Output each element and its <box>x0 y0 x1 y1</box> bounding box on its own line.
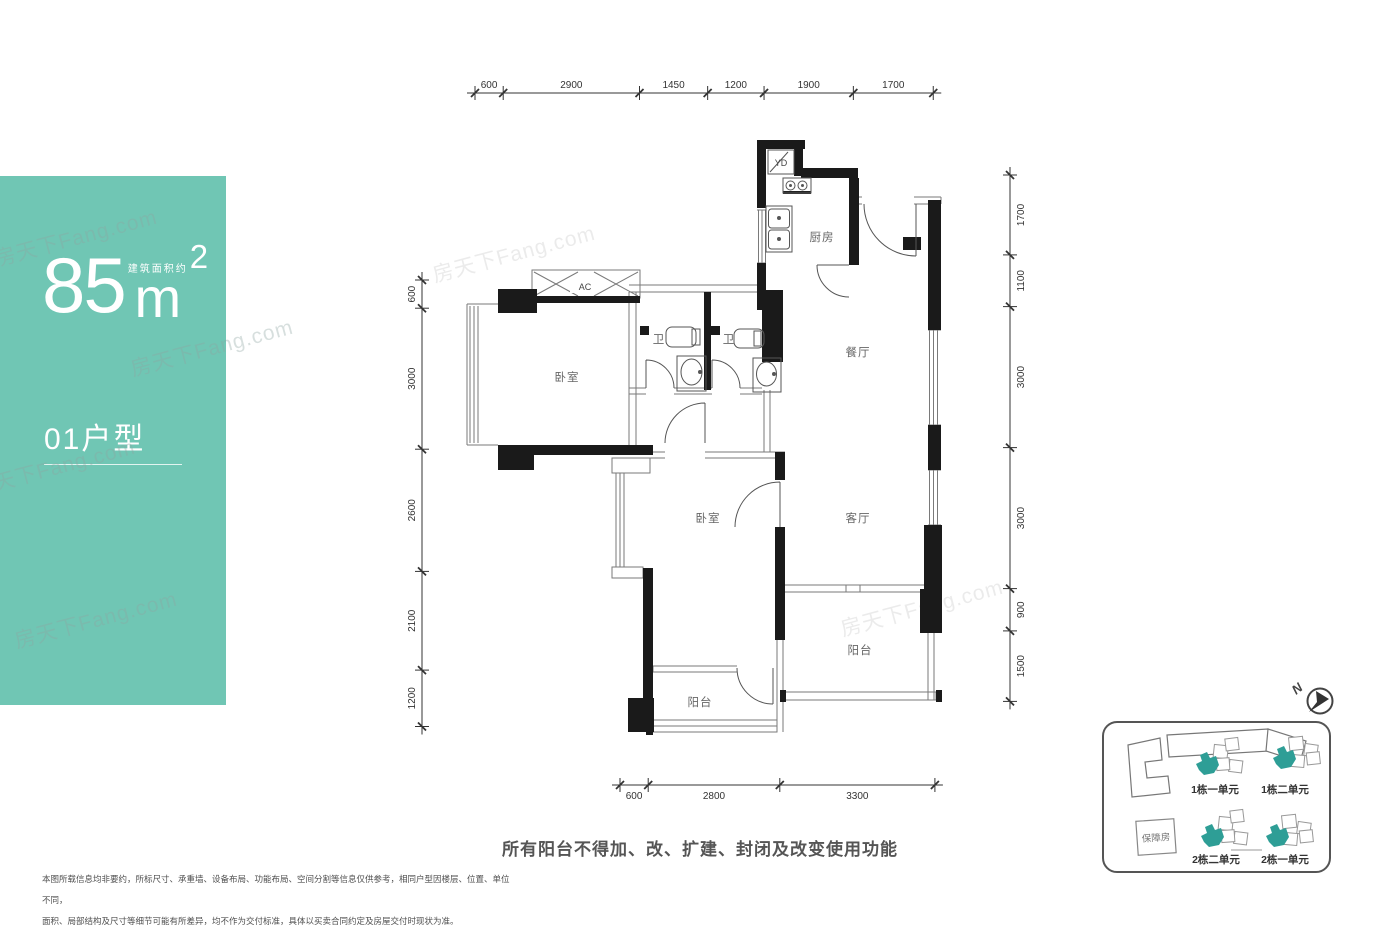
room-label-balcony-bottom: 阳台 <box>688 695 713 709</box>
room-label-balcony-right: 阳台 <box>848 643 873 657</box>
dim-label: 1500 <box>1016 655 1027 678</box>
unit-label-1-2: 1栋二单元 <box>1261 783 1309 796</box>
room-label-flue: YD <box>775 158 788 168</box>
dim-label: 3000 <box>407 367 418 390</box>
room-label-bedroom1: 卧室 <box>555 370 580 384</box>
dim-label: 1900 <box>798 80 821 91</box>
room-label-kitchen: 厨房 <box>810 231 835 244</box>
balcony-door <box>737 668 773 704</box>
dim-label: 900 <box>1016 601 1027 618</box>
toilet-icon <box>734 329 764 348</box>
disclaimer-text: 本图所载信息均非要约，所标尺寸、承重墙、设备布局、功能布局、空间分割等信息仅供参… <box>42 869 512 932</box>
dim-label: 2100 <box>407 609 418 632</box>
dim-label: 1700 <box>1016 203 1027 226</box>
north-letter: N <box>1289 679 1306 697</box>
room-label-bath2: 卫 <box>723 334 736 346</box>
dim-label: 2900 <box>560 80 583 91</box>
unit-label-2-1: 2栋一单元 <box>1261 853 1309 866</box>
room-label-bedroom2: 卧室 <box>696 511 721 525</box>
north-arrow-icon: N <box>1289 679 1333 713</box>
bedroom2-door <box>735 482 780 527</box>
room-labels-group: YD AC 卧室 卫 卫 厨房 餐厅 卧室 客厅 阳台 阳台 <box>555 158 873 709</box>
walls-group <box>498 140 942 735</box>
room-label-dining: 餐厅 <box>846 345 871 359</box>
balcony-notice: 所有阳台不得加、改、扩建、封闭及改变使用功能 <box>500 835 900 860</box>
stove-icon <box>783 178 811 193</box>
dim-label: 3300 <box>846 791 869 802</box>
room-label-ac: AC <box>579 282 592 292</box>
dim-label: 600 <box>481 80 498 91</box>
unit-label-1-1: 1栋一单元 <box>1191 783 1239 796</box>
floorplan-drawing: YD AC 卧室 卫 卫 厨房 餐厅 卧室 客厅 阳台 阳台 600290014… <box>0 0 1400 943</box>
dim-label: 600 <box>407 285 418 302</box>
social-housing-label: 保障房 <box>1141 831 1170 845</box>
floorplan-page: 85 建筑面积约 m 2 01户型 房天下Fang.com 房天下Fang.co… <box>0 0 1400 943</box>
dim-label: 1700 <box>882 80 905 91</box>
dim-label: 1200 <box>725 80 748 91</box>
dim-label: 3000 <box>1016 366 1027 389</box>
dim-label: 600 <box>626 791 643 802</box>
room-label-bath1: 卫 <box>653 334 666 346</box>
unit-label-2-2: 2栋二单元 <box>1192 853 1240 866</box>
dim-label: 3000 <box>1016 507 1027 530</box>
dim-label: 1100 <box>1016 270 1027 292</box>
dim-label: 1200 <box>407 687 418 710</box>
disclaimer-line1: 本图所载信息均非要约，所标尺寸、承重墙、设备布局、功能布局、空间分割等信息仅供参… <box>42 869 512 911</box>
disclaimer-line2: 面积、局部结构及尺寸等细节可能有所差异，均不作为交付标准，具体以买卖合同约定及房… <box>42 911 512 932</box>
room-label-living: 客厅 <box>846 511 871 525</box>
kitchen-door <box>817 265 849 297</box>
washbasin-icon <box>677 356 706 391</box>
bath2-door <box>712 360 740 388</box>
siteplan: 保障房 1栋一单元 1栋二单元 2栋二单元 2栋一单元 <box>1103 722 1330 872</box>
washbasin-icon <box>753 358 781 392</box>
dim-label: 1450 <box>662 80 685 91</box>
toilet-icon <box>666 327 700 347</box>
bath1-door <box>646 360 674 388</box>
dim-label: 2800 <box>703 791 726 802</box>
social-housing-block: 保障房 <box>1136 819 1176 856</box>
dim-label: 2600 <box>407 499 418 522</box>
hall-door <box>665 403 705 443</box>
kitchen-sink-icon <box>766 206 792 252</box>
